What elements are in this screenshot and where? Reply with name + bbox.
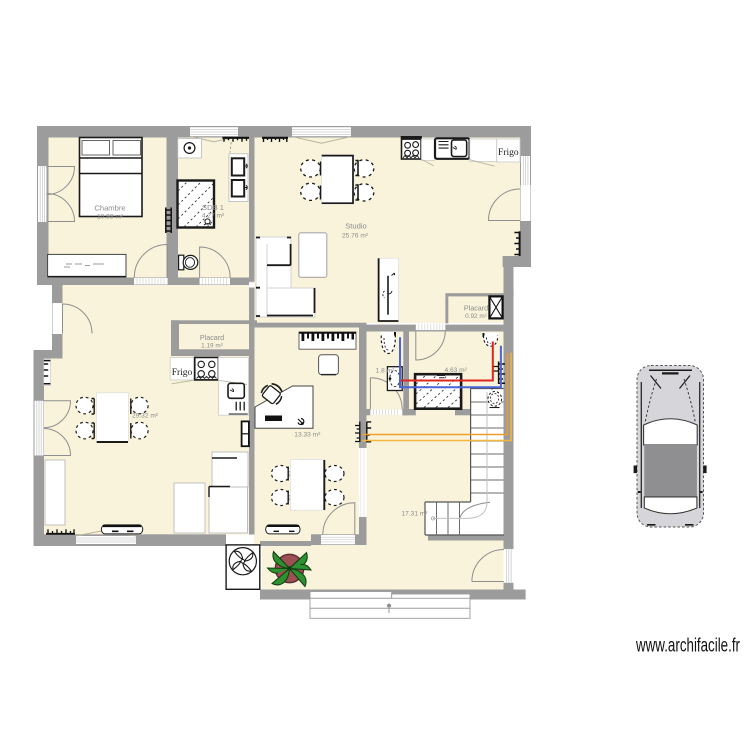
svg-text:10.99 m²: 10.99 m² xyxy=(97,214,124,221)
svg-text:Chambre: Chambre xyxy=(94,203,125,212)
svg-text:Frigo: Frigo xyxy=(498,148,519,158)
svg-text:1.19 m²: 1.19 m² xyxy=(201,343,223,350)
svg-text:www.archifacile.fr: www.archifacile.fr xyxy=(635,636,740,657)
svg-text:25.76 m²: 25.76 m² xyxy=(342,232,369,239)
svg-text:SDB 1: SDB 1 xyxy=(202,203,224,212)
svg-text:17.31 m²: 17.31 m² xyxy=(401,510,428,517)
svg-text:Frigo: Frigo xyxy=(172,368,193,378)
svg-text:4.27 m²: 4.27 m² xyxy=(202,213,225,220)
svg-text:13.33 m²: 13.33 m² xyxy=(294,432,321,439)
svg-text:Placard: Placard xyxy=(464,303,488,312)
svg-text:1.8 m²: 1.8 m² xyxy=(376,367,395,374)
svg-text:Placard: Placard xyxy=(200,333,224,342)
svg-text:29.32 m²: 29.32 m² xyxy=(132,412,159,419)
svg-text:4.63 m²: 4.63 m² xyxy=(445,367,468,374)
svg-text:Studio: Studio xyxy=(345,222,367,231)
svg-text:0.92 m²: 0.92 m² xyxy=(465,313,487,320)
